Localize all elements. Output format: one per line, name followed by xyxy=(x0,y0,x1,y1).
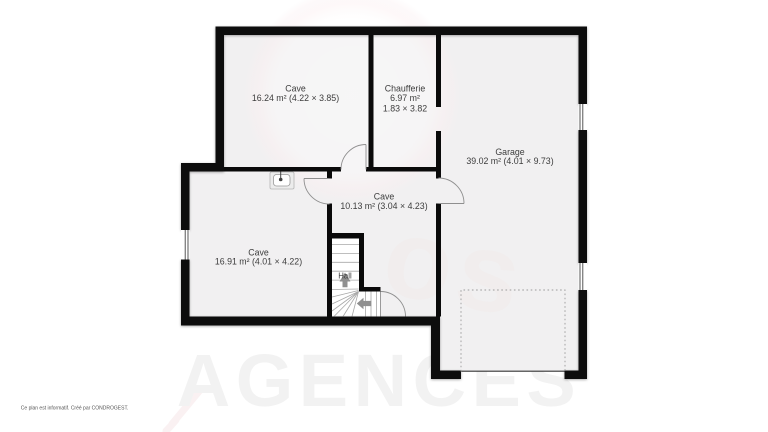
svg-text:Hall: Hall xyxy=(338,271,352,280)
svg-text:Ce plan est informatif. Créé p: Ce plan est informatif. Créé par CONDROG… xyxy=(21,406,129,412)
svg-text:16.24 m² (4.22 × 3.85): 16.24 m² (4.22 × 3.85) xyxy=(252,93,339,103)
svg-text:Cave: Cave xyxy=(374,192,395,202)
svg-text:1.83 × 3.82: 1.83 × 3.82 xyxy=(383,103,427,113)
svg-text:6.97 m²: 6.97 m² xyxy=(390,93,420,103)
svg-text:39.02 m² (4.01 × 9.73): 39.02 m² (4.01 × 9.73) xyxy=(466,156,553,166)
svg-text:16.91 m² (4.01 × 4.22): 16.91 m² (4.01 × 4.22) xyxy=(215,257,302,267)
svg-text:10.13 m² (3.04 × 4.23): 10.13 m² (3.04 × 4.23) xyxy=(340,201,427,211)
